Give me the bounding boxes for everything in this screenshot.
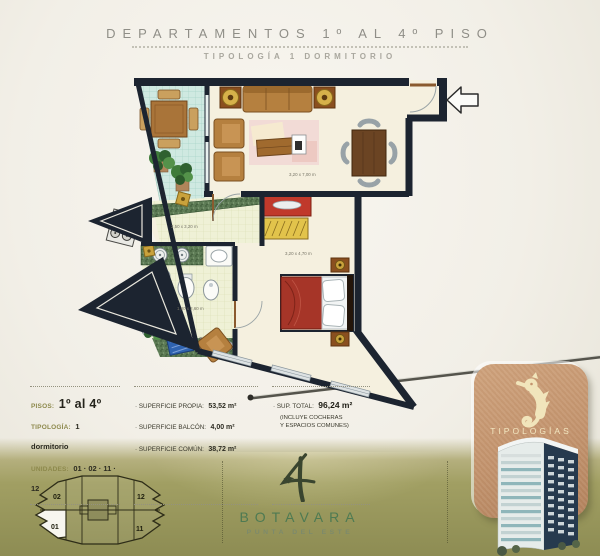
- total-label: · SUP. TOTAL:: [273, 403, 314, 410]
- info-total: · SUP. TOTAL: 96,24 m² (INCLUYE COCHERAS…: [272, 386, 370, 505]
- page-title: DEPARTAMENTOS 1º AL 4º PISO: [0, 26, 600, 41]
- superficie-value: 4,00 m²: [210, 424, 234, 431]
- footer-divider: [447, 461, 448, 543]
- tipologia-label: TIPOLOGÍA:: [31, 424, 71, 431]
- bedroom-dimension: 3,20 x 4,70 m: [285, 251, 312, 256]
- unit-label: 01: [51, 524, 59, 531]
- floor-plan: 3,20 x 7,00 m 2,50 x 3,20 m 1,80 x 2,60 …: [70, 68, 490, 420]
- coffee-table: [256, 138, 295, 157]
- wardrobe: [263, 218, 308, 239]
- brand-subtitle: PUNTA DEL ESTE: [230, 529, 370, 536]
- pisos-value: 1º al 4º: [59, 397, 102, 411]
- page: DEPARTAMENTOS 1º AL 4º PISO TIPOLOGÍA 1 …: [0, 0, 600, 556]
- brand-name: BOTAVARA: [230, 509, 370, 525]
- building-image: [484, 434, 594, 556]
- superficie-label: · SUPERFICIE PROPIA:: [135, 403, 204, 410]
- header: DEPARTAMENTOS 1º AL 4º PISO TIPOLOGÍA 1 …: [0, 26, 600, 61]
- seahorse-icon: [510, 370, 554, 432]
- page-subtitle: TIPOLOGÍA 1 DORMITORIO: [0, 52, 600, 61]
- superficie-label: · SUPERFICIE BALCÓN:: [135, 424, 206, 431]
- kitchen-dimension: 2,50 x 3,20 m: [171, 224, 198, 229]
- dining-table: [352, 130, 386, 176]
- superficie-value: 53,52 m²: [208, 403, 236, 410]
- info-units: PISOS: 1º al 4º TIPOLOGÍA: 1 dormitorio …: [30, 386, 120, 505]
- total-note: Y ESPACIOS COMUNES): [273, 423, 369, 431]
- counter-basket: [176, 192, 191, 207]
- total-value: 96,24 m²: [318, 400, 352, 410]
- unidades-label: UNIDADES:: [31, 466, 69, 473]
- superficie-label: · SUPERFICIE COMÚN:: [135, 446, 204, 453]
- total-note: (INCLUYE COCHERAS: [273, 415, 369, 423]
- info-superficies: · SUPERFICIE PROPIA: 53,52 m² · SUPERFIC…: [134, 386, 258, 505]
- living-dimension: 3,20 x 7,00 m: [289, 172, 316, 177]
- info-block: PISOS: 1º al 4º TIPOLOGÍA: 1 dormitorio …: [30, 386, 370, 505]
- pisos-label: PISOS:: [31, 403, 54, 410]
- superficie-value: 38,72 m²: [208, 446, 236, 453]
- entrance-arrow-icon: [447, 87, 478, 113]
- dotted-rule: [132, 46, 468, 48]
- bath-dimension: 1,80 x 2,60 m: [177, 306, 204, 311]
- unit-label: 11: [136, 526, 144, 533]
